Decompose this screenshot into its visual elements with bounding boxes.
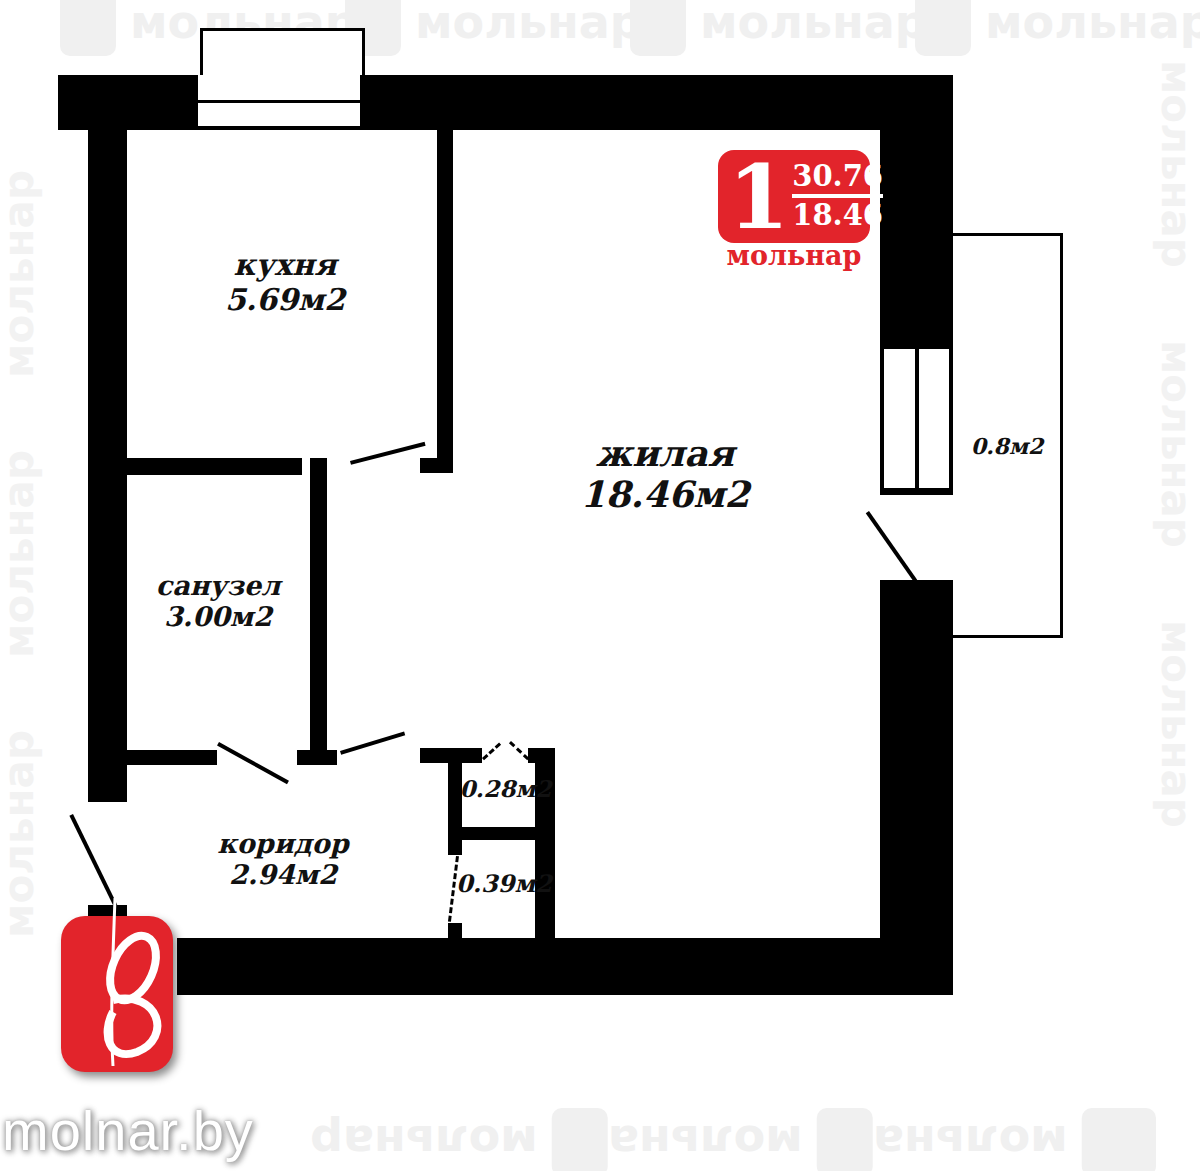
molnar-logo [61,916,173,1072]
wall-right-upper [880,125,953,345]
fraction-bar [792,194,883,198]
watermark-text: мольнар [415,0,643,49]
watermark-bottom-1: мольнар [310,1108,608,1171]
window-pane-line [198,100,360,103]
wall-bathroom-bottom [127,750,217,765]
area-badge: 1 30.76 18.46 [718,150,870,243]
wall-top-left [58,75,198,130]
bathroom-label: санузел 3.00м2 [128,570,308,632]
watermark-top-3: мольнар [630,0,928,56]
kitchen-door-swing [350,442,426,465]
brand-name: мольнар [718,240,870,271]
living-area: 18.46 [792,199,883,232]
brand-logo-icon [630,0,686,56]
site-name: molnar.by [2,1098,254,1163]
watermark-right-3: мольнар [1152,620,1200,828]
room-area: 0.8м2 [953,434,1061,459]
watermark-left-1: мольнар [0,170,43,378]
room-area: 3.00м2 [128,601,308,632]
watermark-bottom-2: мольнар [575,1108,873,1171]
room-area: 0.28м2 [453,776,558,802]
wall-left [88,130,127,802]
room-area: 2.94м2 [183,859,383,890]
wall-bottom [177,938,953,995]
living-room-label: жилая 18.46м2 [530,433,800,516]
wall-closet-bottom-stub [448,923,462,938]
corridor-door-swing [340,731,405,754]
room-area: 18.46м2 [530,474,800,515]
brand-logo-icon [1100,1108,1156,1171]
entrance-door-swing [69,814,117,907]
room-area: 0.39м2 [450,870,558,898]
floor-plan-canvas: мольнар мольнар мольнар мольнар мольнар … [0,0,1200,1171]
watermark-top-2: мольнар [345,0,643,56]
watermark-text: мольнар [985,0,1200,49]
room-name: санузел [128,570,308,601]
wall-bathroom-door-post [297,750,337,765]
room-name: кухня [185,248,385,283]
watermark-text: мольнар [310,1115,538,1169]
watermark-text: мольнар [700,0,928,49]
room-name: жилая [530,433,800,474]
wall-kitchen-living-divider [437,130,453,473]
corridor-label: коридор 2.94м2 [183,828,383,890]
balcony-label: 0.8м2 [953,434,1061,459]
watermark-top-4: мольнар [915,0,1200,56]
closet-large-label: 0.39м2 [450,870,558,898]
wall-kitchen-door-post [420,458,437,473]
closet-folding-door-left [482,743,501,761]
wall-top-right [360,75,953,130]
watermark-text: мольнар [575,1115,803,1169]
balcony-window [880,345,953,495]
kitchen-window [198,75,360,130]
brand-logo-icon [60,0,116,56]
area-fraction: 30.76 18.46 [792,160,883,232]
wall-right-lower [880,580,953,938]
window-pane-line [198,126,360,130]
kitchen-label: кухня 5.69м2 [185,248,385,317]
room-name: коридор [183,828,383,859]
room-area: 5.69м2 [185,283,385,318]
watermark-left-2: мольнар [0,450,43,658]
rooms-count: 1 [718,154,789,240]
watermark-left-3: мольнар [0,730,43,938]
total-area: 30.76 [792,160,883,193]
brand-logo-icon [915,0,971,56]
wall-bathroom-right [310,458,327,750]
bathroom-door-swing [217,742,289,784]
balcony-door-swing [866,511,917,582]
window-divider [915,349,919,488]
closet-small-label: 0.28м2 [453,776,558,802]
watermark-bottom-4 [1100,1108,1156,1171]
watermark-text: мольнар [840,1115,1068,1169]
watermark-right-1: мольнар [1152,60,1200,268]
watermark-bottom-3: мольнар [840,1108,1138,1171]
closet-folding-door-right [509,741,529,760]
butterfly-logo-icon [61,916,173,1072]
wall-kitchen-bathroom-divider [127,458,302,475]
watermark-right-2: мольнар [1152,340,1200,548]
